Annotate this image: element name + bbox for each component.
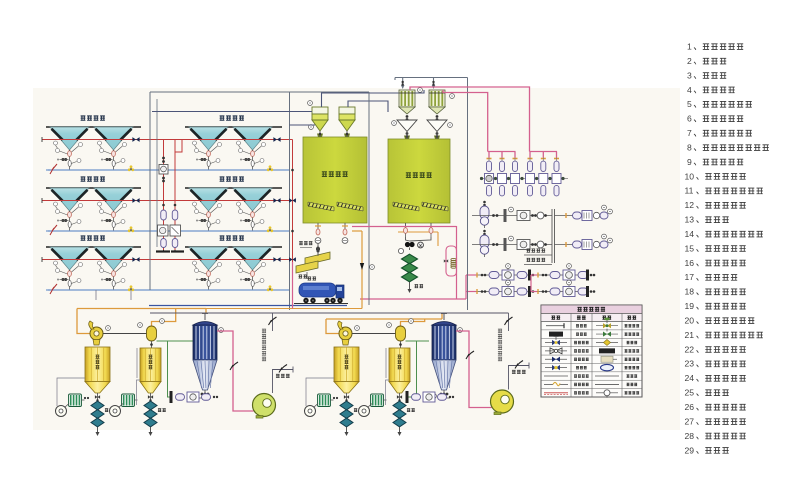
svg-text:5: 5: [687, 99, 692, 109]
svg-text:23: 23: [685, 359, 695, 369]
svg-text:21: 21: [685, 330, 695, 340]
svg-text:13: 13: [685, 215, 695, 225]
svg-text:12: 12: [685, 200, 695, 210]
svg-text:25: 25: [685, 388, 695, 398]
svg-text:14: 14: [685, 229, 695, 239]
svg-text:7: 7: [687, 128, 692, 138]
svg-text:26: 26: [685, 402, 695, 412]
svg-text:3: 3: [687, 70, 692, 80]
svg-text:1: 1: [687, 42, 692, 52]
svg-text:17: 17: [685, 272, 695, 282]
svg-text:22: 22: [685, 344, 695, 354]
svg-text:28: 28: [685, 431, 695, 441]
svg-text:24: 24: [685, 373, 695, 383]
svg-text:29: 29: [685, 445, 695, 455]
svg-text:15: 15: [685, 243, 695, 253]
svg-text:18: 18: [685, 287, 695, 297]
svg-text:20: 20: [685, 315, 695, 325]
svg-text:4: 4: [687, 85, 692, 95]
svg-text:11: 11: [685, 186, 694, 196]
svg-text:27: 27: [685, 416, 695, 426]
svg-text:16: 16: [685, 258, 695, 268]
svg-text:2: 2: [687, 56, 692, 66]
svg-text:8: 8: [687, 142, 692, 152]
svg-text:10: 10: [685, 171, 695, 181]
svg-text:9: 9: [687, 157, 692, 167]
svg-text:19: 19: [685, 301, 695, 311]
svg-text:6: 6: [687, 114, 692, 124]
